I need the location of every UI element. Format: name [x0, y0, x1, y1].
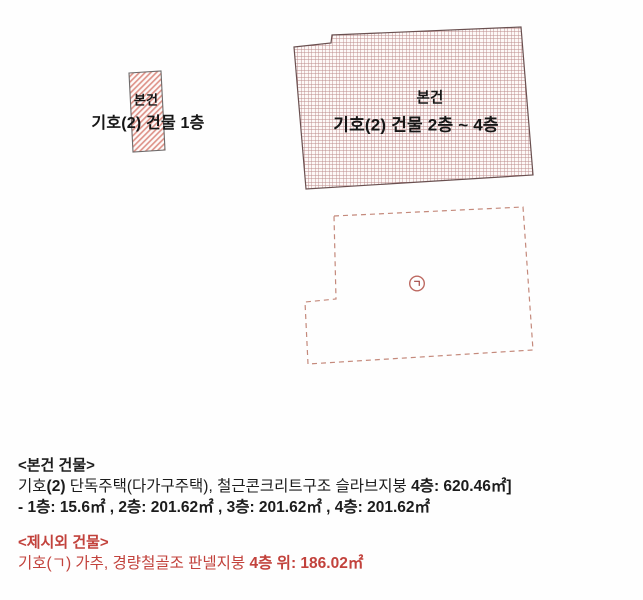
subject-building-notes: <본건 건물> 기호(2) 단독주택(다가구주택), 철근콘크리트구조 슬라브지… [18, 455, 630, 518]
subject-line1-seg2: (2) [47, 478, 66, 495]
subject-floor1-tag: 본건 [134, 90, 158, 109]
subject-floors2to4-label: 기호(2) 건물 2층 ~ 4층 [333, 111, 499, 136]
subject-line1-seg1: 기호 [18, 478, 47, 495]
subject-floor1-label: 기호(2) 건물 1층 [91, 109, 204, 133]
subject-notes-line2: - 1층: 15.6㎡ , 2층: 201.62㎡ , 3층: 201.62㎡ … [18, 497, 630, 518]
circled-giyeok-icon: ㄱ [410, 276, 425, 291]
subject-floors2to4-shape [294, 27, 533, 189]
subject-notes-line1: 기호(2) 단독주택(다가구주택), 철근콘크리트구조 슬라브지붕 4층: 62… [18, 476, 630, 497]
extra-notes-heading: <제시외 건물> [18, 532, 630, 553]
giyeok-symbol-text: ㄱ [413, 279, 422, 290]
subject-line1-seg3: 단독주택(다가구주택), 철근콘크리트구조 슬라브지붕 [65, 478, 411, 495]
extra-notes-line1: 기호(ㄱ) 가추, 경량철골조 판넬지붕 4층 위: 186.02㎡ [18, 553, 630, 574]
extra-line1-seg2: 4층 위: 186.02㎡ [250, 555, 364, 572]
subject-notes-heading: <본건 건물> [18, 455, 630, 476]
extra-building-notes: <제시외 건물> 기호(ㄱ) 가추, 경량철골조 판넬지붕 4층 위: 186.… [18, 532, 630, 574]
notes-spacer [18, 518, 630, 532]
subject-floors2to4-tag: 본건 [416, 87, 443, 108]
subject-line1-seg4: 4층: 620.46㎡] [411, 478, 511, 495]
extra-line1-seg1: 기호(ㄱ) 가추, 경량철골조 판넬지붕 [18, 555, 250, 572]
building-sketch-page: ㄱ 본건 기호(2) 건물 1층 본건 기호(2) 건물 2층 ~ 4층 <본건… [0, 0, 643, 600]
notes-block: <본건 건물> 기호(2) 단독주택(다가구주택), 철근콘크리트구조 슬라브지… [18, 455, 630, 574]
